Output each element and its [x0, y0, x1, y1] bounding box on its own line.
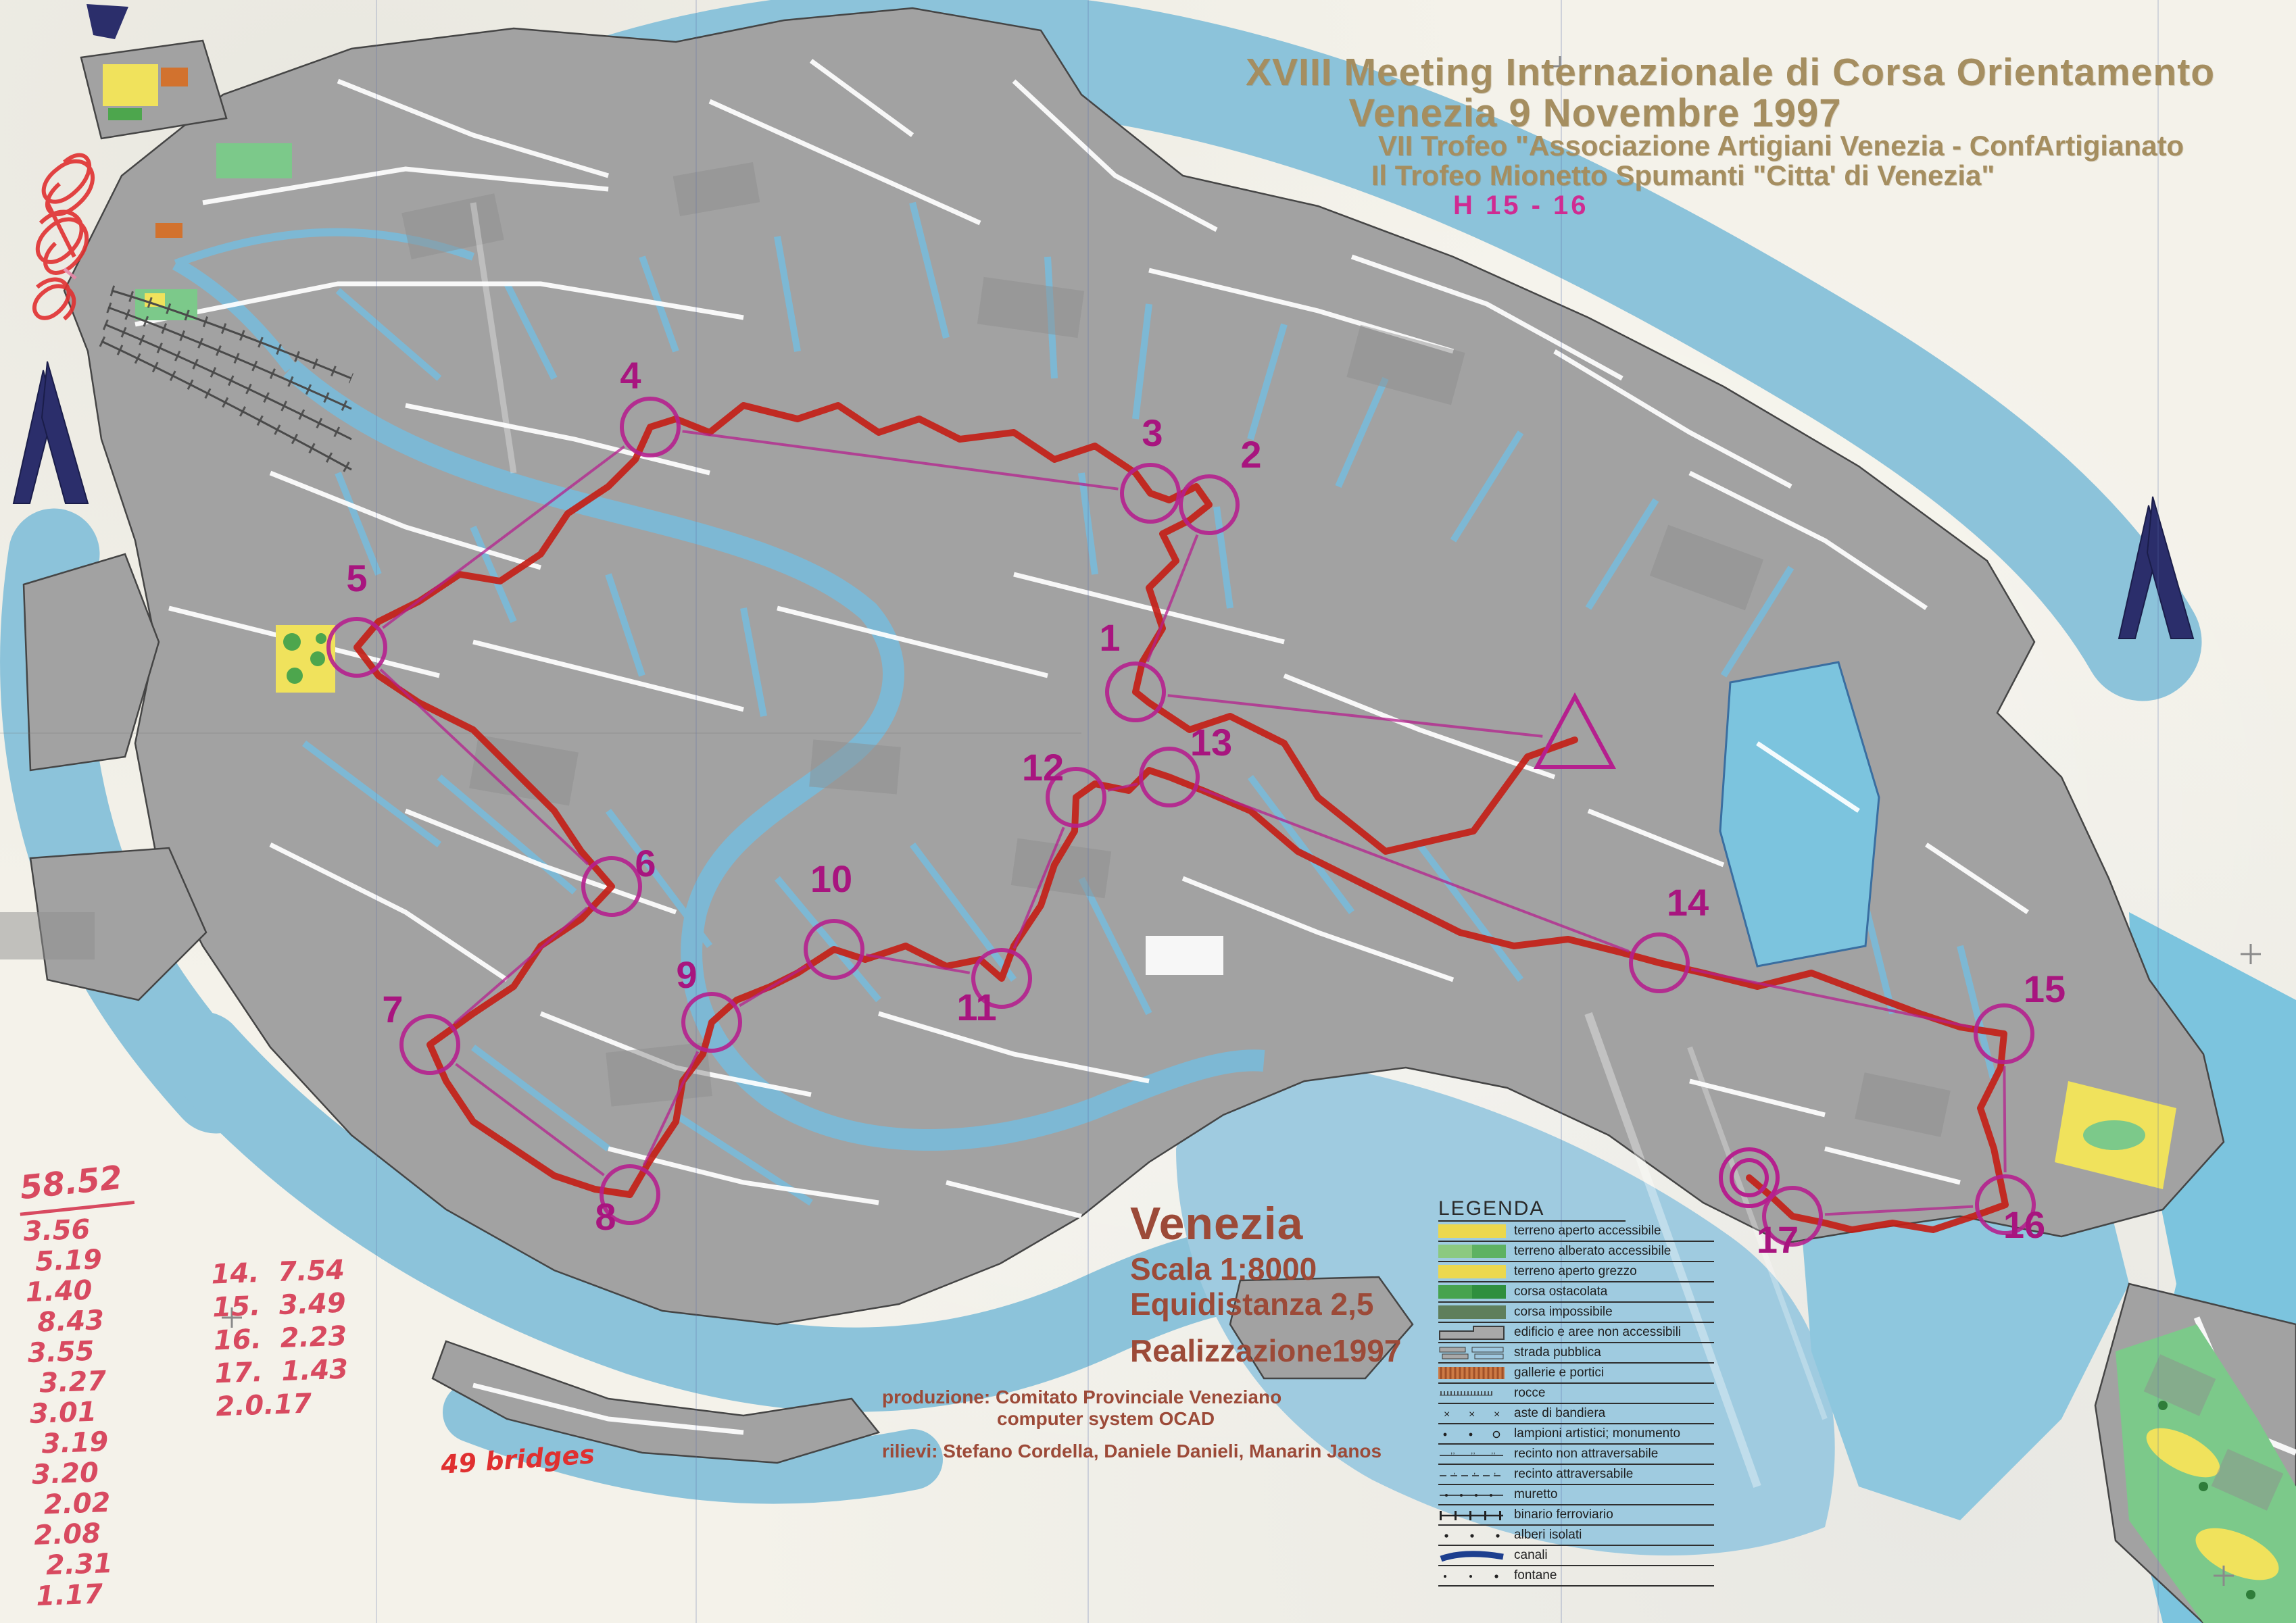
legend-swatch-rail: [1438, 1507, 1506, 1522]
legend-swatch-fence1: ,,,,,,: [1438, 1447, 1506, 1462]
legend-row: corsa impossibile: [1438, 1303, 1714, 1323]
legend-swatch-hatch: [1438, 1366, 1506, 1380]
map-name: Venezia: [1130, 1200, 1401, 1248]
legend-label: lampioni artistici; monumento: [1514, 1426, 1680, 1441]
legend-swatch-rocks: [1438, 1386, 1506, 1401]
legend-swatch-wall: [1438, 1487, 1506, 1502]
handwritten-split-time: 3.01: [29, 1396, 107, 1429]
svg-text:×: ×: [1494, 1409, 1500, 1420]
control-number: 17: [1757, 1218, 1799, 1261]
control-number: 15: [2024, 968, 2066, 1010]
legend-row: lampioni artistici; monumento: [1438, 1424, 1714, 1445]
legend-row: ,,,recinto attraversabile: [1438, 1465, 1714, 1485]
map-edition: Realizzazione1997: [1130, 1335, 1401, 1368]
legend-row: fontane: [1438, 1566, 1714, 1587]
legend-label: edificio e aree non accessibili: [1514, 1325, 1681, 1340]
legend-swatch-fence2: ,,,: [1438, 1467, 1506, 1482]
handwritten-split-time: 2.31: [45, 1548, 113, 1580]
legend-label: terreno aperto accessibile: [1514, 1224, 1661, 1239]
handwritten-split-time: 1.40: [25, 1274, 103, 1307]
handwritten-split-time: 3.20: [31, 1457, 109, 1490]
legend-label: aste di bandiera: [1514, 1406, 1605, 1421]
legend-rows: terreno aperto accessibileterreno albera…: [1438, 1222, 1714, 1587]
handwritten-splits-column2: 14. 7.5415. 3.4916. 2.2317. 1.432.0.17: [211, 1255, 350, 1425]
legend-row: ,,,,,,recinto non attraversabile: [1438, 1445, 1714, 1465]
event-title-line1: XVIII Meeting Internazionale di Corsa Or…: [1169, 50, 2291, 95]
handwritten-split-time: 17. 1.43: [214, 1354, 349, 1392]
legend-label: terreno aperto grezzo: [1514, 1264, 1637, 1279]
legend-title: LEGENDA: [1438, 1197, 1626, 1222]
north-arrow-left: [14, 361, 88, 503]
svg-text:,: ,: [1453, 1467, 1455, 1476]
svg-text:,,: ,,: [1491, 1447, 1496, 1455]
handwritten-split-time: 5.19: [34, 1244, 102, 1276]
handwritten-splits-column1: 3.565.191.408.433.553.273.013.193.202.02…: [23, 1214, 114, 1612]
control-number: 10: [810, 857, 852, 900]
svg-text:,: ,: [1473, 1467, 1475, 1476]
map-scale: Scala 1:8000: [1130, 1253, 1401, 1286]
control-number: 9: [676, 953, 697, 996]
legend-swatch-building: [1438, 1325, 1506, 1340]
corner-mark: [87, 4, 128, 39]
control-number: 8: [595, 1195, 616, 1238]
control-number: 2: [1240, 433, 1261, 476]
svg-text:,,: ,,: [1471, 1447, 1475, 1455]
legend-row: edificio e aree non accessibili: [1438, 1323, 1714, 1343]
legend-swatch-fill: [1438, 1305, 1506, 1320]
svg-text:×: ×: [1469, 1409, 1475, 1420]
legend-label: binario ferroviario: [1514, 1507, 1613, 1522]
legend-swatch-lamps: [1438, 1426, 1506, 1441]
control-number: 7: [382, 988, 403, 1030]
event-subtitle2: Il Trofeo Mionetto Spumanti "Citta' di V…: [1277, 159, 2089, 192]
legend-row: canali: [1438, 1546, 1714, 1566]
handwritten-split-time: 15. 3.49: [212, 1288, 346, 1326]
handwritten-split-time: 1.17: [36, 1578, 114, 1612]
control-number: 14: [1667, 881, 1709, 924]
legend-row: ×××aste di bandiera: [1438, 1404, 1714, 1424]
legend-row: strada pubblica: [1438, 1343, 1714, 1364]
legend-row: binario ferroviario: [1438, 1505, 1714, 1526]
course-leg-line: [2004, 1066, 2005, 1172]
legend: LEGENDA terreno aperto accessibileterren…: [1438, 1197, 1714, 1587]
map-info-block: Venezia Scala 1:8000 Equidistanza 2,5 Re…: [1130, 1200, 1401, 1368]
handwritten-split-time: 3.55: [27, 1335, 105, 1368]
legend-swatch-road: [1438, 1345, 1506, 1360]
legend-swatch-flags: ×××: [1438, 1406, 1506, 1421]
legend-label: gallerie e portici: [1514, 1366, 1604, 1380]
legend-label: alberi isolati: [1514, 1528, 1582, 1543]
control-number: 13: [1190, 721, 1232, 764]
legend-row: gallerie e portici: [1438, 1364, 1714, 1384]
handwritten-split-time: 14. 7.54: [211, 1255, 345, 1293]
event-subtitle1: VII Trofeo "Associazione Artigiani Venez…: [1375, 130, 2187, 162]
handwritten-split-time: 3.27: [39, 1366, 107, 1398]
class-category: H 15 - 16: [1453, 191, 1589, 221]
handwritten-split-time: 8.43: [37, 1305, 105, 1337]
legend-row: corsa ostacolata: [1438, 1282, 1714, 1303]
control-number: 1: [1099, 616, 1120, 659]
event-title-line2: Venezia 9 Novembre 1997: [1054, 91, 2136, 136]
control-number: 4: [620, 354, 641, 397]
legend-swatch-trees: [1438, 1528, 1506, 1543]
legend-swatch-fill: [1438, 1224, 1506, 1239]
handwritten-split-time: 2.02: [43, 1487, 111, 1520]
legend-label: recinto non attraversabile: [1514, 1447, 1658, 1462]
control-number: 6: [635, 842, 656, 884]
legend-row: alberi isolati: [1438, 1526, 1714, 1546]
legend-label: recinto attraversabile: [1514, 1467, 1633, 1482]
handwritten-split-time: 3.56: [23, 1214, 101, 1247]
map-equidistance: Equidistanza 2,5: [1130, 1289, 1401, 1321]
legend-label: canali: [1514, 1548, 1548, 1563]
legend-swatch-fill: [1438, 1264, 1506, 1279]
legend-swatch-fountains: [1438, 1568, 1506, 1583]
handwritten-split-time: 3.19: [41, 1426, 109, 1459]
handwritten-split-time: 2.0.17: [216, 1387, 350, 1425]
legend-label: terreno alberato accessibile: [1514, 1244, 1671, 1259]
legend-label: corsa impossibile: [1514, 1305, 1613, 1320]
scanned-orienteering-map-page: { "title": { "line1": "XVIII Meeting Int…: [0, 0, 2296, 1623]
handwritten-split-time: 2.08: [34, 1518, 112, 1551]
legend-row: terreno aperto accessibile: [1438, 1222, 1714, 1242]
svg-text:,: ,: [1494, 1467, 1496, 1476]
credits-block: produzione: Comitato Provinciale Venezia…: [882, 1387, 1382, 1463]
legend-swatch-fill2: [1438, 1244, 1506, 1259]
legend-row: terreno aperto grezzo: [1438, 1262, 1714, 1282]
credit-software: computer system OCAD: [997, 1408, 1382, 1430]
legend-label: rocce: [1514, 1386, 1545, 1401]
legend-label: corsa ostacolata: [1514, 1284, 1607, 1299]
legend-row: muretto: [1438, 1485, 1714, 1505]
legend-label: muretto: [1514, 1487, 1557, 1502]
legend-row: terreno alberato accessibile: [1438, 1242, 1714, 1262]
control-number: 3: [1142, 411, 1163, 454]
legend-label: fontane: [1514, 1568, 1557, 1583]
legend-swatch-fill2: [1438, 1284, 1506, 1299]
legend-label: strada pubblica: [1514, 1345, 1601, 1360]
legend-swatch-canal: [1438, 1548, 1506, 1563]
control-number: 12: [1022, 746, 1064, 789]
svg-text:×: ×: [1444, 1409, 1450, 1420]
credit-surveyors: rilievi: Stefano Cordella, Daniele Danie…: [882, 1441, 1382, 1462]
credit-production: produzione: Comitato Provinciale Venezia…: [882, 1387, 1382, 1408]
svg-text:,,: ,,: [1450, 1447, 1455, 1455]
legend-row: rocce: [1438, 1384, 1714, 1404]
control-number: 11: [956, 986, 996, 1028]
control-number: 5: [346, 557, 367, 599]
control-number: 16: [2003, 1203, 2045, 1246]
handwritten-split-time: 16. 2.23: [213, 1321, 347, 1359]
